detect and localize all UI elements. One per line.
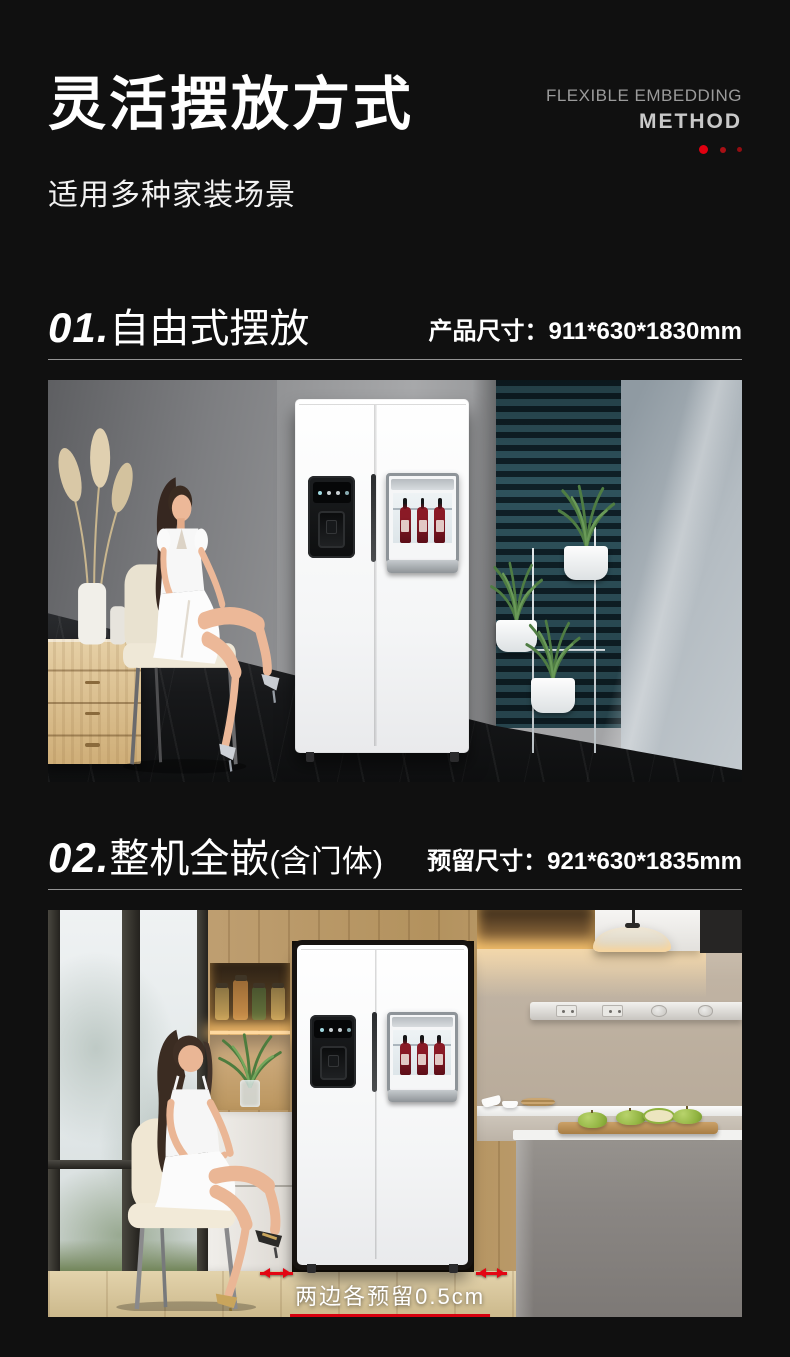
right-wall <box>621 380 742 782</box>
fridge-door-seam <box>374 405 376 746</box>
bottle <box>400 1043 411 1076</box>
dispenser-display <box>313 482 352 502</box>
fridge-foot <box>449 1264 458 1273</box>
cup <box>502 1101 518 1108</box>
plant-icon <box>550 482 623 548</box>
red-dot-icon <box>720 147 726 153</box>
dark-corner <box>700 910 742 953</box>
section-01-spec: 产品尺寸：911*630*1830mm <box>428 311 742 350</box>
dispenser-paddle <box>328 1055 339 1067</box>
fridge-top-seam <box>301 949 465 950</box>
product-detail-page: 灵活摆放方式 FLEXIBLE EMBEDDING METHOD 适用多种家装场… <box>0 0 790 1357</box>
divider <box>48 889 742 890</box>
dispenser-recess <box>318 511 345 548</box>
fridge-handle <box>372 1012 377 1092</box>
spec-label: 产品尺寸： <box>428 318 548 345</box>
accent-dots <box>546 145 742 154</box>
dispenser-paddle <box>326 520 337 533</box>
fridge-foot <box>450 752 459 762</box>
lamp-shade <box>593 927 671 952</box>
red-dot-icon <box>699 145 708 154</box>
pendant-lamp <box>593 910 671 952</box>
header: 灵活摆放方式 FLEXIBLE EMBEDDING METHOD <box>48 0 742 154</box>
dimmer-knob-icon <box>651 1005 667 1017</box>
warm-light-glow <box>477 949 706 998</box>
homebar-compartment <box>386 473 458 563</box>
jar <box>215 987 229 1020</box>
plant-pot <box>564 546 608 580</box>
red-dot-icon <box>737 147 742 152</box>
page-title: 灵活摆放方式 <box>48 74 414 137</box>
header-left: 灵活摆放方式 <box>48 74 414 137</box>
fridge-handle <box>371 474 376 562</box>
jar <box>271 987 285 1020</box>
clearance-caption: 两边各预留0.5cm <box>290 1279 490 1317</box>
tagline-line1: FLEXIBLE EMBEDDING <box>546 86 742 106</box>
homebar-compartment <box>387 1012 458 1093</box>
homebar-door <box>388 1090 457 1101</box>
countertop <box>477 1106 742 1117</box>
power-track <box>530 1002 742 1020</box>
spec-value: 911*630*1830mm <box>548 318 742 345</box>
header-right: FLEXIBLE EMBEDDING METHOD <box>546 74 742 154</box>
window-frame <box>48 910 60 1317</box>
divider <box>48 359 742 360</box>
page-subtitle: 适用多种家装场景 <box>48 170 742 214</box>
refrigerator <box>295 399 469 753</box>
shelf-with-jars <box>210 963 289 1030</box>
bottle <box>417 1043 428 1076</box>
plant-icon <box>518 617 588 681</box>
woven-mats <box>521 1098 554 1106</box>
seated-woman <box>117 467 297 775</box>
section-02-header: 02.整机全嵌(含门体) 预留尺寸：921*630*1835mm <box>48 836 742 880</box>
lit-upper-niche <box>477 910 595 949</box>
spec-value: 921*630*1835mm <box>547 848 742 875</box>
outlet-icon <box>602 1005 623 1017</box>
bottle <box>400 507 411 543</box>
section-01-title: 01.自由式摆放 <box>48 306 309 350</box>
photo-embedded: 两边各预留0.5cm <box>48 910 742 1317</box>
section-02-index: 02. <box>48 834 109 881</box>
photo-freestanding <box>48 380 742 782</box>
spec-label: 预留尺寸： <box>427 848 547 875</box>
section-01-header: 01.自由式摆放 产品尺寸：911*630*1830mm <box>48 306 742 350</box>
fridge-door-seam <box>375 950 377 1259</box>
plant-stand <box>489 501 635 766</box>
clearance-arrow-right-icon <box>476 1272 507 1275</box>
plant-pot <box>531 678 575 712</box>
outlet-icon <box>556 1005 577 1017</box>
homebar-latch <box>391 479 453 490</box>
clearance-arrow-left-icon <box>260 1272 293 1275</box>
homebar-interior <box>393 1030 450 1075</box>
pear <box>578 1112 608 1127</box>
section-02-title: 02.整机全嵌(含门体) <box>48 836 383 880</box>
bottle <box>434 1043 445 1076</box>
section-01-index: 01. <box>48 304 109 351</box>
homebar-interior <box>393 493 451 543</box>
jar <box>233 980 247 1020</box>
fridge-foot <box>306 752 315 762</box>
fridge-top-seam <box>299 404 466 405</box>
homebar-door <box>387 560 457 573</box>
tagline-line2: METHOD <box>546 110 742 134</box>
plant-icon <box>483 559 550 623</box>
kitchen-island <box>516 1130 742 1317</box>
homebar-latch <box>392 1017 453 1027</box>
pear <box>616 1110 646 1125</box>
pear <box>673 1109 703 1124</box>
bottle <box>417 507 428 543</box>
bottle <box>434 507 445 543</box>
dimmer-knob-icon <box>698 1005 714 1017</box>
jar <box>252 987 266 1020</box>
water-dispenser <box>308 476 355 557</box>
section-02-spec: 预留尺寸：921*630*1835mm <box>427 841 742 880</box>
